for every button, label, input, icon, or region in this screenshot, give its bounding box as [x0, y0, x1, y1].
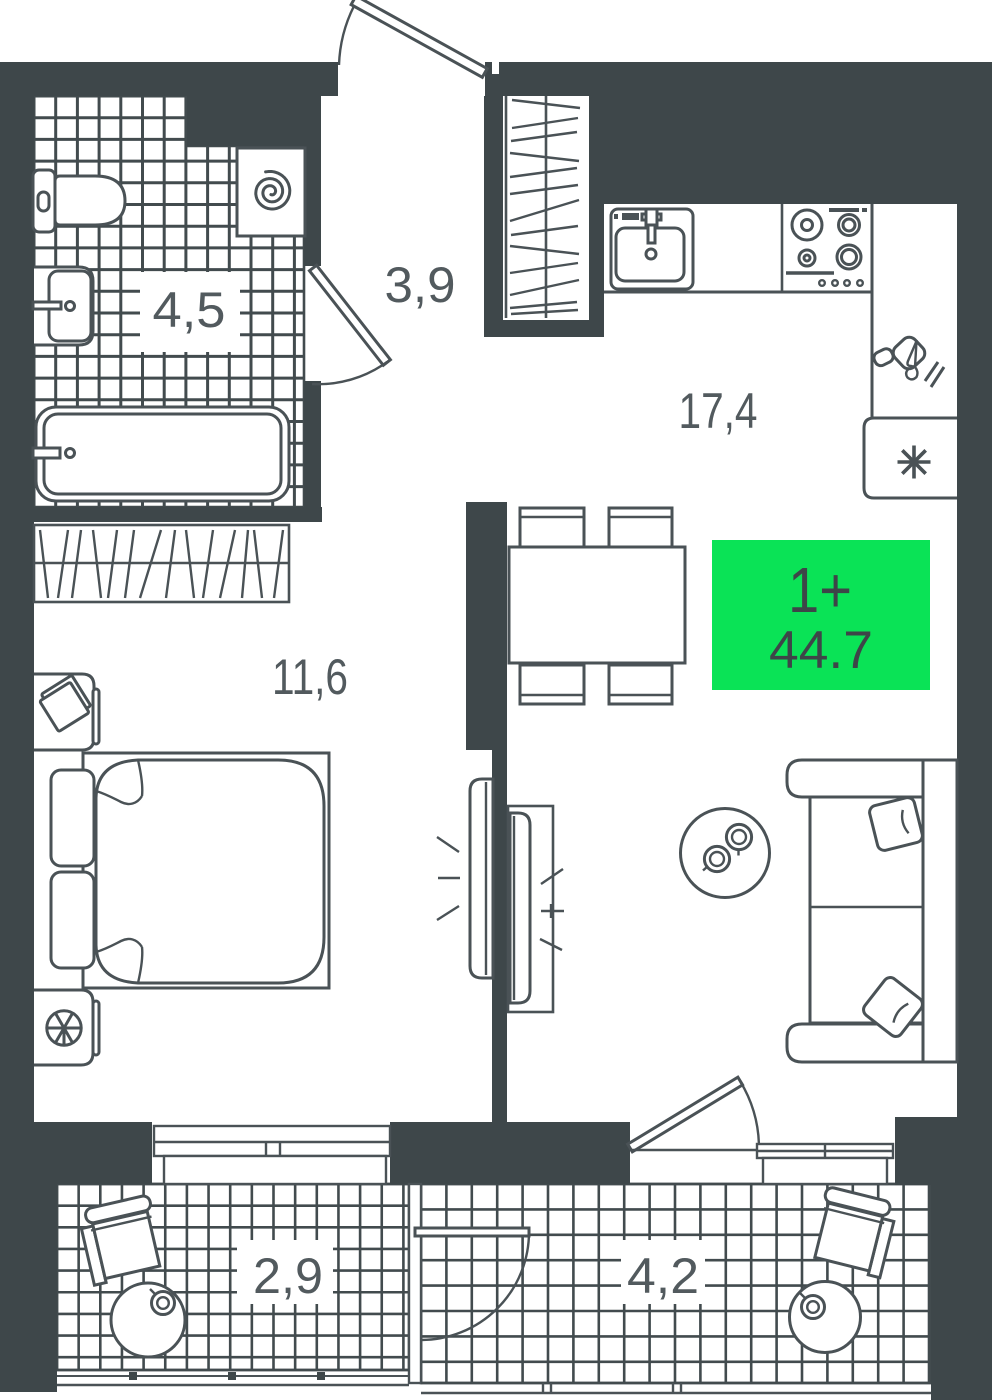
svg-text:1+: 1+	[788, 554, 852, 626]
svg-text:4,2: 4,2	[627, 1248, 699, 1304]
svg-text:4,5: 4,5	[153, 282, 226, 338]
svg-text:44.7: 44.7	[769, 621, 873, 680]
svg-text:11,6: 11,6	[272, 649, 348, 705]
svg-text:2,9: 2,9	[253, 1248, 323, 1304]
svg-text:3,9: 3,9	[385, 257, 456, 313]
svg-text:17,4: 17,4	[679, 383, 758, 439]
